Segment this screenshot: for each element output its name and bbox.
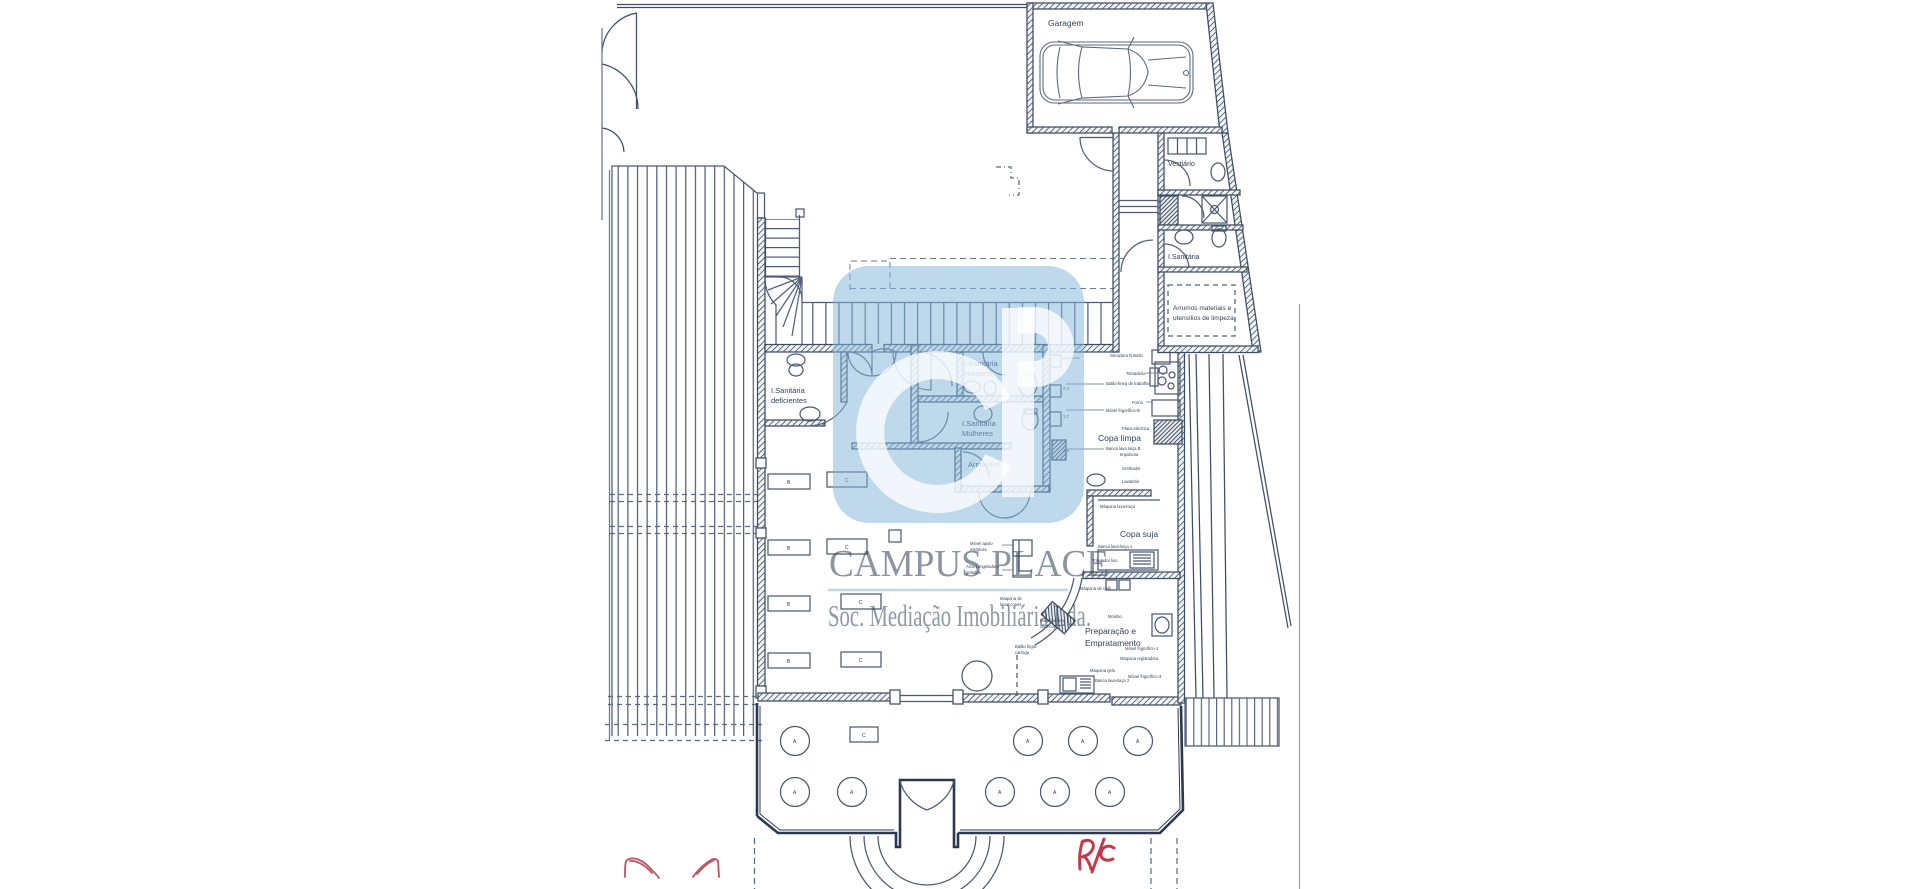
- svg-text:Balão-línea de trabalho: Balão-línea de trabalho: [1106, 381, 1150, 386]
- svg-text:I.Sanitária: I.Sanitária: [771, 386, 806, 395]
- svg-text:Máquina de café: Máquina de café: [1080, 586, 1112, 591]
- svg-text:Impulsora: Impulsora: [1120, 452, 1139, 457]
- svg-text:Móvel frigorífico-B: Móvel frigorífico-B: [1106, 408, 1140, 413]
- svg-text:deficientes: deficientes: [771, 396, 807, 405]
- svg-text:Grelhador: Grelhador: [1122, 466, 1141, 471]
- svg-text:Móvel frigorífico-3: Móvel frigorífico-3: [1128, 674, 1162, 679]
- svg-text:Soc. Mediação Imobiliária Lda.: Soc. Mediação Imobiliária Lda.: [828, 598, 1091, 633]
- svg-text:C: C: [859, 658, 863, 664]
- svg-text:Arrumos materiais e: Arrumos materiais e: [1173, 305, 1232, 312]
- svg-text:Banca lava-loiça 2: Banca lava-loiça 2: [1095, 678, 1130, 683]
- svg-text:Máquina lava-loiça: Máquina lava-loiça: [1100, 504, 1136, 509]
- svg-text:I.Sanitária: I.Sanitária: [1168, 254, 1200, 261]
- svg-text:carrega: carrega: [1015, 650, 1030, 655]
- svg-text:Balão frigor.: Balão frigor.: [1015, 644, 1037, 649]
- svg-text:Copa limpa: Copa limpa: [1098, 433, 1141, 443]
- svg-text:Garagem: Garagem: [1048, 18, 1083, 28]
- svg-text:Forno: Forno: [1132, 400, 1144, 405]
- svg-text:Vestiário: Vestiário: [1168, 161, 1195, 168]
- svg-text:CAMPUS PLACE: CAMPUS PLACE: [829, 543, 1109, 585]
- svg-text:Preparação e: Preparação e: [1085, 626, 1136, 636]
- svg-text:C: C: [862, 733, 866, 739]
- svg-text:Lavatório: Lavatório: [1122, 479, 1140, 484]
- svg-text:Placa eléctrica: Placa eléctrica: [1122, 426, 1150, 431]
- svg-text:utensílios de limpeza: utensílios de limpeza: [1173, 315, 1234, 322]
- svg-text:Banca lava loiça B: Banca lava loiça B: [1106, 446, 1141, 451]
- svg-text:Máquina registadora: Máquina registadora: [1120, 656, 1159, 661]
- svg-text:Tomadeira: Tomadeira: [1126, 371, 1146, 376]
- svg-text:Secadora húmido: Secadora húmido: [1110, 353, 1143, 358]
- svg-text:Móvel frigorífico-1: Móvel frigorífico-1: [1125, 646, 1159, 651]
- svg-text:Máquina gelo: Máquina gelo: [1090, 668, 1116, 673]
- svg-text:Copa suja: Copa suja: [1120, 529, 1159, 539]
- svg-text:Moinho: Moinho: [1108, 614, 1122, 619]
